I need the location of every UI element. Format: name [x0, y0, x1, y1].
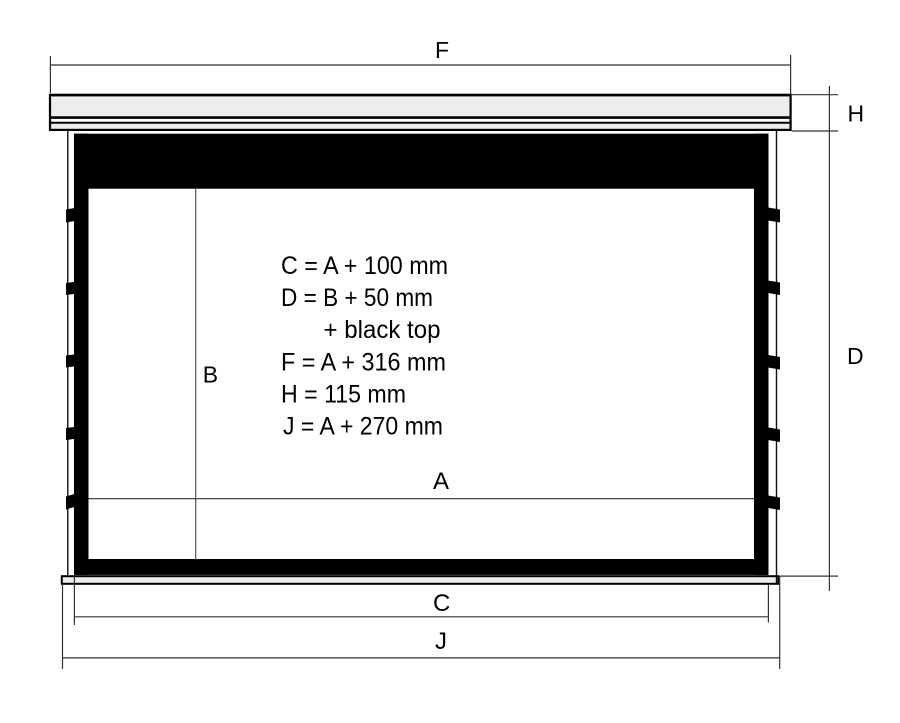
svg-text:C: C [433, 590, 450, 617]
svg-text:D: D [847, 343, 864, 369]
svg-text:H = 115 mm: H = 115 mm [281, 380, 406, 408]
svg-text:F: F [435, 37, 449, 63]
svg-text:B: B [203, 362, 218, 388]
svg-text:A: A [433, 468, 449, 495]
svg-text:J: J [435, 628, 447, 655]
svg-text:C = A + 100 mm: C = A + 100 mm [281, 252, 448, 280]
svg-text:F = A + 316 mm: F = A + 316 mm [281, 348, 446, 376]
svg-text:D = B + 50 mm: D = B + 50 mm [281, 284, 433, 312]
svg-text:+ black top: + black top [324, 316, 441, 344]
svg-text:J = A + 270 mm: J = A + 270 mm [283, 413, 443, 441]
svg-text:H: H [848, 101, 865, 127]
